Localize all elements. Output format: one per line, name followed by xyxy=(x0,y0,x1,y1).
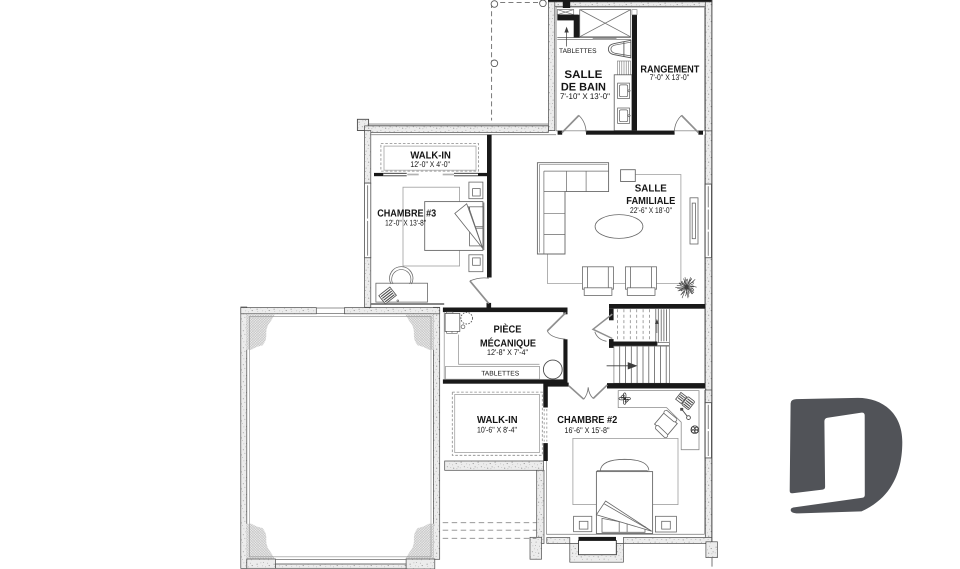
svg-text:12'-0" X 13'-8": 12'-0" X 13'-8" xyxy=(385,219,426,228)
svg-text:TABLETTES: TABLETTES xyxy=(559,48,597,55)
svg-text:12'-8" X 7'-4": 12'-8" X 7'-4" xyxy=(487,348,528,357)
svg-text:16'-6" X 15'-8": 16'-6" X 15'-8" xyxy=(565,426,610,435)
svg-text:22'-6" X 18'-0": 22'-6" X 18'-0" xyxy=(630,206,672,215)
svg-text:12'-0" X 4'-0": 12'-0" X 4'-0" xyxy=(410,160,450,169)
svg-text:CHAMBRE #2: CHAMBRE #2 xyxy=(557,415,617,426)
svg-text:10'-6" X 8'-4": 10'-6" X 8'-4" xyxy=(477,426,517,435)
svg-text:SALLE: SALLE xyxy=(564,69,602,81)
svg-text:WALK-IN: WALK-IN xyxy=(477,415,518,426)
svg-text:SALLE: SALLE xyxy=(635,183,667,194)
svg-text:7'-0" X 13'-0": 7'-0" X 13'-0" xyxy=(650,73,690,82)
svg-text:TABLETTES: TABLETTES xyxy=(481,371,519,378)
svg-text:PIÈCE: PIÈCE xyxy=(494,322,522,335)
svg-text:7'-10" X 13'-0": 7'-10" X 13'-0" xyxy=(560,92,610,101)
